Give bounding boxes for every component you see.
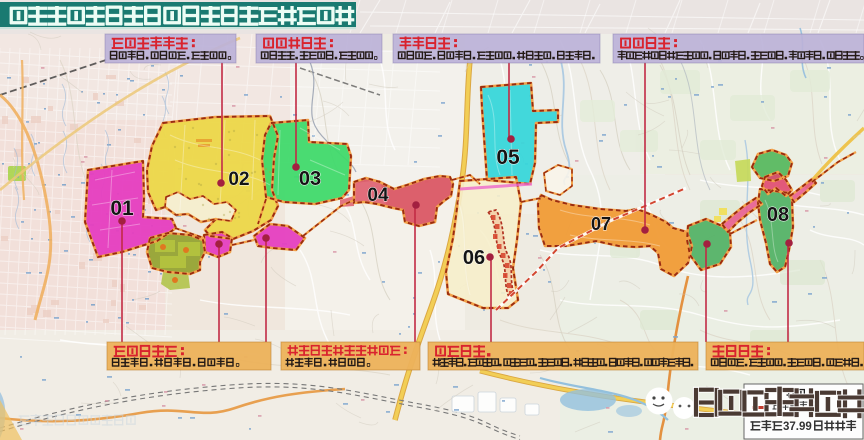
svg-text:01: 01 <box>110 197 134 220</box>
svg-text:07: 07 <box>591 214 611 234</box>
svg-text:06: 06 <box>463 247 485 269</box>
svg-text:03: 03 <box>299 168 321 190</box>
svg-text:05: 05 <box>496 146 520 169</box>
svg-text:04: 04 <box>367 185 389 206</box>
svg-text:08: 08 <box>767 204 789 226</box>
svg-text:02: 02 <box>228 169 249 190</box>
svg-text:37.99: 37.99 <box>783 421 812 433</box>
